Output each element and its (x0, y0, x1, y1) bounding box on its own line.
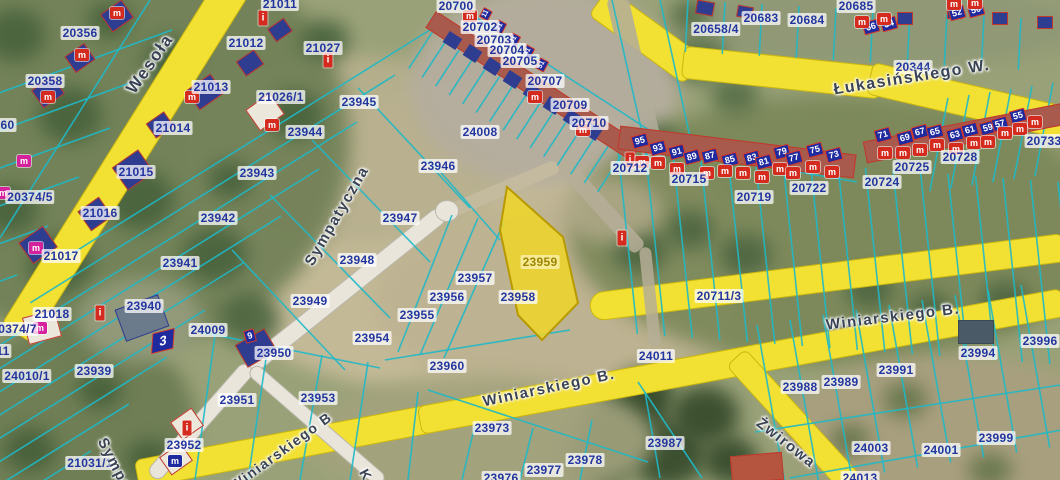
parcel-label: 20724 (863, 175, 902, 189)
building-marker-m-icon[interactable]: m (168, 455, 182, 467)
parcel-label: 21012 (227, 36, 266, 50)
parcel-label: 23960 (428, 359, 467, 373)
parcel-label: 20700 (437, 0, 476, 13)
parcel-label: 20374/5 (5, 190, 54, 204)
parcel-label: 23946 (419, 159, 458, 173)
building-marker-m-icon[interactable]: m (967, 137, 981, 149)
building-marker-m-icon[interactable]: m (877, 13, 891, 25)
building (958, 320, 994, 344)
parcel-label: 23950 (255, 346, 294, 360)
parcel-label: 20684 (788, 13, 827, 27)
parcel-label: 21011 (261, 0, 299, 11)
parcel-label: 23945 (340, 95, 379, 109)
parcel-label: 23987 (646, 436, 685, 450)
building (1037, 16, 1053, 29)
parcel-label: 23958 (499, 290, 538, 304)
building (992, 12, 1008, 25)
parcel-label: 23996 (1021, 334, 1060, 348)
building-marker-m-icon[interactable]: m (981, 136, 995, 148)
parcel-label: 21013 (192, 80, 231, 94)
parcel-label: 21026/1 (256, 90, 305, 104)
parcel-label: 23957 (456, 271, 495, 285)
building-marker-m-icon[interactable]: m (17, 155, 31, 167)
parcel-label: 20728 (941, 150, 980, 164)
parcel-label: 23989 (822, 375, 861, 389)
building-marker-m-icon[interactable]: m (998, 127, 1012, 139)
parcel-label: 20707 (526, 74, 565, 88)
building-marker-m-icon[interactable]: m (896, 147, 910, 159)
building-marker-m-icon[interactable]: m (110, 7, 124, 19)
parcel-label: 21017 (42, 249, 81, 263)
parcel-label: 20710 (570, 116, 609, 130)
parcel-label: 20709 (551, 98, 590, 112)
parcel-label: 20374/7 (0, 322, 39, 336)
building-marker-m-icon[interactable]: m (1028, 116, 1042, 128)
parcel-label: 20715 (670, 172, 709, 186)
parcel-label: 23948 (338, 253, 377, 267)
parcel-label: 23943 (238, 166, 277, 180)
parcel-label: 20712 (611, 161, 650, 175)
parcel-label: 23942 (199, 211, 238, 225)
parcel-label: 24001 (922, 443, 961, 457)
building-marker-m-icon[interactable]: m (855, 16, 869, 28)
info-marker-icon[interactable]: i (183, 421, 192, 436)
parcel-label: 20683 (742, 11, 781, 25)
parcel-label: 23994 (959, 346, 998, 360)
parcel-label: 11 (0, 344, 12, 358)
parcel-label: 20358 (26, 74, 65, 88)
parcel-label: 21027 (304, 41, 343, 55)
building (695, 0, 715, 16)
parcel-label: 21016 (81, 206, 120, 220)
parcel-label: 20733 (1025, 134, 1060, 148)
building-marker-m-icon[interactable]: m (41, 91, 55, 103)
parcel-label: 23954 (353, 331, 392, 345)
parcel-label: 20685 (837, 0, 876, 13)
info-marker-icon[interactable]: i (259, 11, 268, 26)
building-marker-m-icon[interactable]: m (528, 91, 542, 103)
parcel-label: 20356 (61, 26, 100, 40)
parcel-label: 24013 (841, 471, 880, 480)
building (730, 452, 784, 480)
parcel-label: 23949 (291, 294, 330, 308)
parcel-label: 23999 (977, 431, 1016, 445)
parcel-label: 23978 (566, 453, 605, 467)
parcel-label: 23988 (781, 380, 820, 394)
parcel-label: 24011 (637, 349, 675, 363)
parcel-label: 23955 (398, 308, 437, 322)
parcel-label: 23991 (877, 363, 916, 377)
building-marker-m-icon[interactable]: m (736, 167, 750, 179)
parcel-label: 24010/1 (2, 369, 51, 383)
parcel-label: 23940 (125, 299, 164, 313)
building-marker-m-icon[interactable]: m (651, 157, 665, 169)
info-marker-icon[interactable]: i (618, 231, 627, 246)
parcel-label: 23952 (165, 438, 204, 452)
parcel-label: 20702 (461, 20, 500, 34)
parcel-label: 24009 (189, 323, 228, 337)
parcel-label: 20725 (893, 160, 932, 174)
building-marker-m-icon[interactable]: m (75, 49, 89, 61)
parcel-label: 20705 (501, 54, 540, 68)
parcel-label: 360 (0, 118, 16, 132)
parcel-label: 24008 (461, 125, 500, 139)
building-marker-m-icon[interactable]: m (913, 144, 927, 156)
parcel-label: 23977 (525, 463, 564, 477)
parcel-label: 23947 (381, 211, 420, 225)
building-marker-m-icon[interactable]: m (878, 147, 892, 159)
building-marker-m-icon[interactable]: m (718, 165, 732, 177)
building-marker-m-icon[interactable]: m (755, 171, 769, 183)
parcel-label: 23944 (286, 125, 325, 139)
info-marker-icon[interactable]: i (96, 306, 105, 321)
building-marker-m-icon[interactable]: m (947, 0, 961, 10)
parcel-label: 20711/3 (695, 289, 744, 303)
parcel-label: 23973 (473, 421, 512, 435)
parcel-label: 20722 (790, 181, 829, 195)
building-marker-m-icon[interactable]: m (773, 163, 787, 175)
parcel-label: 23941 (161, 256, 200, 270)
building-marker-m-icon[interactable]: m (825, 166, 839, 178)
building-marker-m-icon[interactable]: m (786, 167, 800, 179)
parcel-label: 23976 (482, 471, 521, 480)
parcel-label: 20719 (735, 190, 774, 204)
parcel-label: 21014 (154, 121, 193, 135)
parcel-label: 21018 (33, 307, 72, 321)
parcel-label: 20658/4 (691, 22, 740, 36)
building-marker-m-icon[interactable]: m (265, 119, 279, 131)
parcel-label: 24003 (852, 441, 891, 455)
parcel-label: 23951 (218, 393, 257, 407)
parcel-label: 23956 (428, 290, 467, 304)
building (897, 12, 913, 25)
parcel-label: 23953 (299, 391, 338, 405)
highlighted-parcel-label: 23959 (521, 255, 560, 269)
building-marker-m-icon[interactable]: m (806, 161, 820, 173)
parcel-label: 23939 (75, 364, 114, 378)
map-canvas[interactable]: 5654525095939189878583817977757371696765… (0, 0, 1060, 480)
parcel-label: 21015 (117, 165, 156, 179)
building-marker-m-icon[interactable]: m (968, 0, 982, 9)
